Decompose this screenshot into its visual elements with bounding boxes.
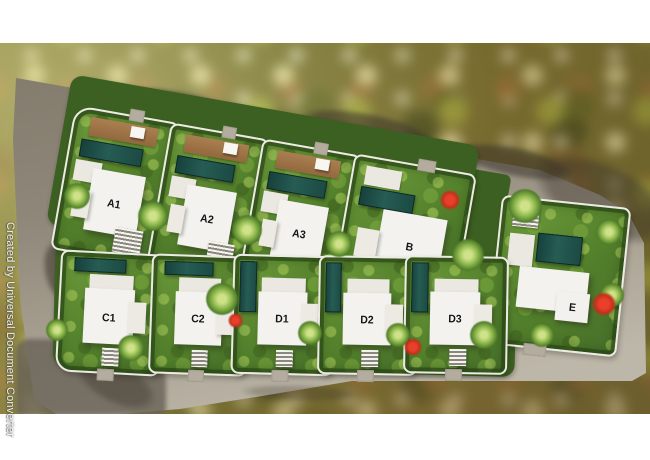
flowering-tree [404, 338, 422, 356]
slatted-pergola [276, 350, 293, 368]
driveway [445, 369, 462, 381]
palm-tree [452, 239, 484, 271]
driveway [187, 370, 203, 383]
canopy-icon [130, 126, 146, 139]
aerial-render: A1 A2 A3 [0, 43, 650, 414]
canopy-icon [314, 158, 330, 171]
flowering-tree [228, 313, 243, 328]
driveway [313, 141, 329, 155]
canopy-icon [222, 142, 238, 155]
palm-tree [470, 321, 498, 349]
palm-tree [118, 335, 144, 361]
unit-label-a1: A1 [106, 197, 121, 211]
unit-label-c2: C2 [191, 314, 205, 326]
slatted-pergola [361, 350, 378, 368]
swimming-pool [165, 260, 214, 276]
unit-label-c1: C1 [102, 312, 116, 325]
site-plan-image: A1 A2 A3 [0, 0, 650, 460]
palm-tree [298, 321, 322, 345]
driveway [129, 109, 146, 123]
swimming-pool [74, 257, 127, 274]
driveway [271, 370, 288, 382]
swimming-pool [239, 260, 257, 311]
palm-tree [508, 189, 542, 223]
villa-building: D2 [343, 292, 392, 346]
palm-tree [64, 183, 90, 209]
palm-tree [326, 231, 352, 257]
swimming-pool [411, 262, 429, 312]
watermark-text: Created by Universal Document Converter [1, 222, 16, 458]
slatted-pergola [449, 349, 466, 366]
driveway [417, 159, 437, 174]
terrace [507, 233, 535, 268]
driveway [96, 368, 114, 381]
palm-tree [138, 201, 168, 231]
villa-building: A2 [177, 184, 237, 253]
flowering-tree [440, 190, 460, 210]
palm-tree [206, 283, 238, 315]
terrace [364, 166, 403, 191]
villa-wing [127, 302, 147, 334]
villa-roof-block: E [554, 291, 590, 323]
unit-label-b: B [405, 241, 415, 254]
unit-label-a2: A2 [199, 213, 214, 227]
unit-label-a3: A3 [291, 227, 306, 241]
villa-building: A1 [83, 168, 146, 239]
palm-tree [596, 219, 622, 245]
palm-tree [232, 215, 262, 245]
unit-label-d2: D2 [360, 314, 374, 326]
unit-label-d1: D1 [275, 314, 289, 326]
villa-plot-d3: D3 [403, 255, 509, 375]
swimming-pool [535, 233, 583, 267]
slatted-pergola [192, 350, 209, 368]
palm-tree [530, 323, 554, 347]
swimming-pool [325, 262, 342, 313]
palm-tree [46, 319, 68, 341]
flowering-tree [592, 292, 616, 316]
slatted-pergola [101, 348, 119, 367]
unit-label-d3: D3 [448, 314, 462, 326]
driveway [221, 126, 237, 140]
driveway [357, 370, 374, 382]
unit-label-e: E [568, 302, 576, 315]
